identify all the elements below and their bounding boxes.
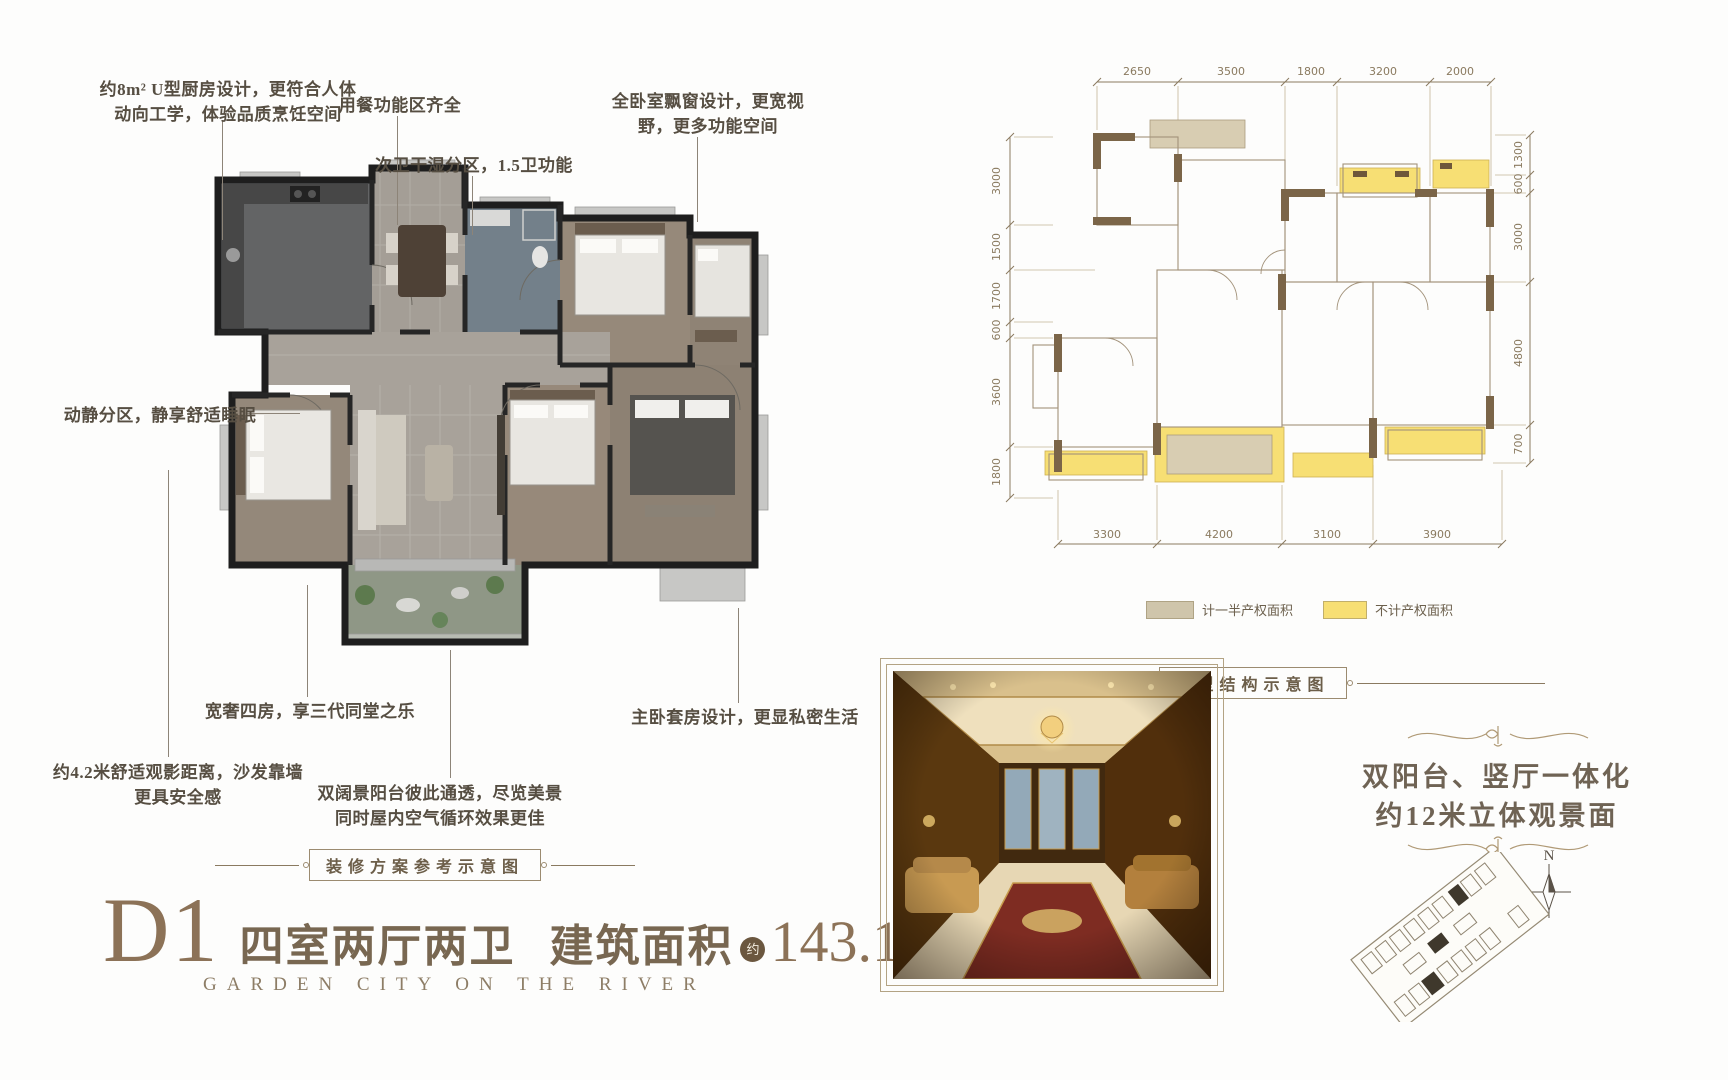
leader-bath [472, 176, 473, 235]
tech-wall-accents [1054, 133, 1494, 472]
note-four-rooms: 宽奢四房，享三代同堂之乐 [205, 700, 415, 725]
caption-line [1357, 683, 1546, 684]
note-dining: 用餐功能区齐全 [339, 94, 462, 119]
note-quiet-zone: 动静分区，静享舒适睡眠 [64, 404, 257, 429]
dim-label: 3200 [1369, 65, 1397, 78]
rendered-floorplan [140, 115, 790, 660]
dim-label: 3900 [1423, 528, 1451, 541]
site-plan [1330, 852, 1570, 1022]
dim-label: 3000 [1512, 223, 1525, 251]
dim-label: 3300 [1093, 528, 1121, 541]
caption-line [215, 865, 299, 866]
tech-plan-legend: 计一半产权面积 不计产权面积 [1146, 600, 1453, 619]
area-label: 建筑面积 [549, 910, 733, 974]
dim-label: 3500 [1217, 65, 1245, 78]
caption-text: 装修方案参考示意图 [326, 859, 524, 876]
interior-photo [893, 671, 1211, 979]
dim-label: 3600 [990, 378, 1003, 406]
dim-label: 4800 [1512, 339, 1525, 367]
legend-label-none: 不计产权面积 [1375, 600, 1453, 619]
dim-label: 600 [1512, 174, 1525, 195]
title-block: D1 四室两厅两卫 建筑面积 约 143.19m2 [103, 884, 988, 976]
note-bath: 次卫干湿分区，1.5卫功能 [375, 154, 573, 179]
caption-decor-plan: 装修方案参考示意图 [215, 849, 635, 881]
legend-swatch-none [1323, 601, 1367, 619]
dim-label: 1800 [990, 458, 1003, 486]
note-balcony: 双阔景阳台彼此通透，尽览美景 同时屋内空气循环效果更佳 [318, 782, 563, 831]
dim-label: 1300 [1512, 141, 1525, 169]
caption-box: 装修方案参考示意图 [309, 849, 541, 881]
leader-baywindow [697, 137, 698, 222]
caption-line [551, 865, 635, 866]
project-subtitle: GARDEN CITY ON THE RIVER [203, 974, 706, 996]
leader-sofa [168, 470, 169, 757]
poster-canvas: 约8m² U型厨房设计，更符合人体 动向工学，体验品质烹饪空间 用餐功能区齐全 … [0, 0, 1728, 1080]
leader-master [738, 608, 739, 703]
dim-label: 2000 [1446, 65, 1474, 78]
dim-label: 1700 [990, 282, 1003, 310]
dim-label: 3000 [990, 167, 1003, 195]
legend-label-half: 计一半产权面积 [1202, 600, 1293, 619]
dim-label: 1500 [990, 233, 1003, 261]
dim-label: 3100 [1313, 528, 1341, 541]
interior-photo-frame [880, 658, 1224, 992]
dim-label: 600 [990, 320, 1003, 341]
feature-line-2: 约12米立体观景面 [1376, 794, 1619, 833]
unit-code: D1 [103, 884, 219, 976]
technical-floorplan: 2650 3500 1800 3200 2000 3000 1500 1700 … [945, 50, 1545, 590]
leader-four-rooms [307, 585, 308, 697]
legend-swatch-half [1146, 601, 1194, 619]
approx-badge: 约 [740, 937, 765, 962]
dim-label: 1800 [1297, 65, 1325, 78]
tech-colored-areas [1045, 120, 1489, 482]
caption-ornament [541, 862, 547, 868]
note-sofa: 约4.2米舒适观影距离，沙发靠墙 更具安全感 [53, 761, 303, 810]
caption-ornament [303, 862, 309, 868]
note-baywindow: 全卧室飘窗设计，更宽视 野，更多功能空间 [612, 90, 805, 139]
unit-layout: 四室两厅两卫 [239, 910, 515, 974]
dim-label: 4200 [1205, 528, 1233, 541]
flourish-top [1404, 720, 1592, 750]
leader-balcony [450, 650, 451, 778]
note-master: 主卧套房设计，更显私密生活 [631, 706, 859, 731]
caption-ornament [1347, 680, 1353, 686]
dim-label: 2650 [1123, 65, 1151, 78]
dim-label: 700 [1512, 434, 1525, 455]
feature-line-1: 双阳台、竖厅一体化 [1362, 755, 1632, 794]
tech-door-arcs [1105, 250, 1428, 366]
leader-kitchen [222, 120, 223, 240]
note-kitchen: 约8m² U型厨房设计，更符合人体 动向工学，体验品质烹饪空间 [100, 78, 357, 127]
